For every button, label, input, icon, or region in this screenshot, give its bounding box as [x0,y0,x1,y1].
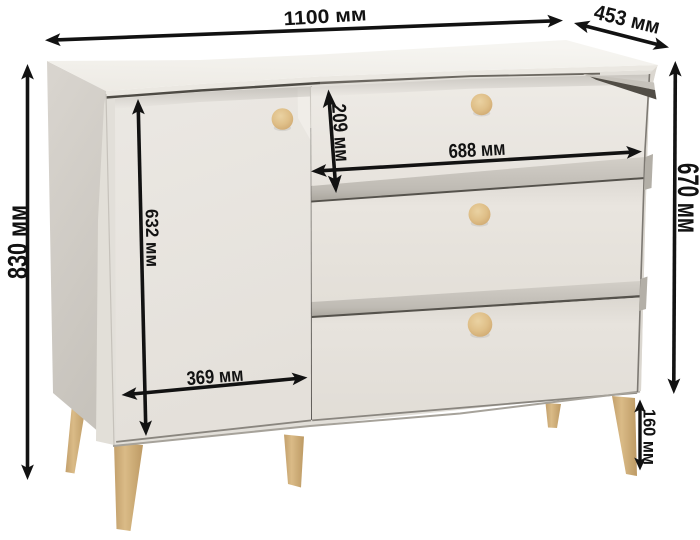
svg-text:830 мм: 830 мм [2,205,33,279]
svg-text:160 мм: 160 мм [640,409,660,465]
svg-text:670 мм: 670 мм [671,163,700,233]
svg-text:632 мм: 632 мм [142,209,163,267]
svg-text:369 мм: 369 мм [186,364,245,390]
svg-text:209 мм: 209 мм [327,103,353,162]
svg-text:688 мм: 688 мм [448,138,506,163]
